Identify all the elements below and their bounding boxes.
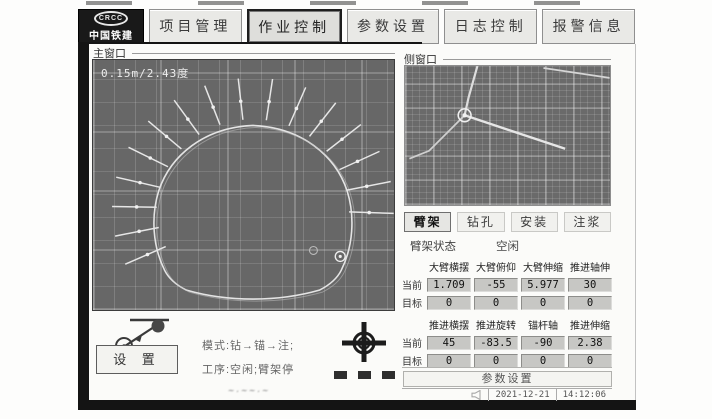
indicator-square [358, 371, 371, 379]
mode-drill-button[interactable]: 钻孔 [457, 212, 504, 232]
bolt-line [174, 100, 199, 134]
bolt-marker-dot [367, 211, 371, 215]
axis-value-field[interactable]: 0 [568, 296, 612, 310]
frame-strip-bottom [78, 400, 636, 410]
axis-tables: 大臂横摆大臂俯仰大臂伸缩推进轴伸当前1.709-555.97730目标0000推… [402, 259, 614, 368]
row-label: 目标 [402, 295, 424, 310]
indicator-square [382, 371, 395, 379]
bolt-line [349, 212, 394, 213]
header-rule [443, 59, 611, 60]
bolt-line [115, 227, 159, 236]
bolt-line [125, 247, 165, 265]
status-bar: 2021-12-21 14:12:06 [402, 388, 612, 401]
bolt-marker-dot [165, 135, 169, 139]
arm-status-value: 空闲 [496, 238, 519, 254]
indicator-squares [334, 371, 396, 379]
arm-status-label: 臂架状态 [410, 238, 456, 254]
axis-value-field[interactable]: -83.5 [474, 336, 518, 350]
axis-value-field[interactable]: 0 [427, 354, 471, 368]
bolt-line [339, 151, 379, 169]
bolt-line [129, 147, 168, 166]
axis-value-field[interactable]: 0 [568, 354, 612, 368]
axis-value-field[interactable]: 0 [474, 296, 518, 310]
row-label: 当前 [402, 335, 424, 350]
axis-value-field[interactable]: 2.38 [568, 336, 612, 350]
row-label: 当前 [402, 277, 424, 292]
sound-icon [465, 389, 488, 401]
axis-value-field[interactable]: 0 [474, 354, 518, 368]
bolt-marker-dot [146, 253, 150, 257]
position-marker-dot [339, 255, 342, 258]
bolt-line [327, 125, 361, 152]
axis-table-1: 大臂横摆大臂俯仰大臂伸缩推进轴伸当前1.709-555.97730目标0000 [402, 259, 614, 310]
header-rule [132, 53, 395, 54]
tunnel-drawing [93, 60, 394, 310]
illegible-scribble-watermark: ~·~~·~ [227, 386, 359, 397]
divider [402, 367, 612, 368]
tab-operation-control[interactable]: 作业控制 [247, 9, 342, 44]
axis-value-field[interactable]: -90 [521, 336, 565, 350]
setup-button[interactable]: 设 置 [96, 345, 178, 374]
bolt-marker-dot [211, 105, 215, 109]
bolt-line [116, 177, 159, 187]
axis-value-field[interactable]: 45 [427, 336, 471, 350]
axis-header: 推进旋转 [474, 317, 518, 332]
tab-parameter-settings[interactable]: 参数设置 [347, 9, 440, 44]
axis-header: 锚杆轴 [521, 317, 565, 332]
bolt-line [148, 121, 181, 149]
status-time: 14:12:06 [556, 389, 612, 401]
bolt-line [238, 79, 243, 120]
bolt-marker-dot [267, 100, 271, 104]
brand-logo: CRCC 中国铁建 [78, 9, 144, 44]
window-right-edge [635, 44, 636, 400]
axis-value-field[interactable]: -55 [474, 278, 518, 292]
axis-header: 推进轴伸 [568, 259, 612, 274]
tunnel-cross-section-canvas[interactable]: 0.15m/2.43度 [92, 59, 395, 311]
boom-side-view-drawing [405, 66, 610, 205]
scan-artifact [86, 1, 628, 5]
boom-side-view-canvas[interactable] [404, 65, 611, 206]
bolt-marker-dot [137, 230, 141, 234]
mode-text: 模式:钻→锚→注; [202, 337, 294, 353]
secondary-marker [309, 247, 317, 255]
top-bar: CRCC 中国铁建 项目管理作业控制参数设置日志控制报警信息 [78, 9, 635, 44]
bolt-line [309, 103, 335, 137]
arm-status-row: 臂架状态 空闲 [410, 238, 610, 254]
crosshair-target-icon [336, 320, 392, 368]
axis-header: 推进伸缩 [568, 317, 612, 332]
axis-value-field[interactable]: 0 [427, 296, 471, 310]
bolt-marker-dot [138, 181, 142, 185]
axis-value-field[interactable]: 5.977 [521, 278, 565, 292]
offset-angle-readout: 0.15m/2.43度 [101, 65, 189, 81]
bolt-marker-dot [340, 137, 344, 141]
axis-header: 推进横摆 [427, 317, 471, 332]
axis-value-field[interactable]: 0 [521, 354, 565, 368]
mode-boom-button[interactable]: 臂架 [404, 212, 451, 232]
bolt-line [347, 182, 391, 191]
crcc-emblem-icon: CRCC [94, 11, 128, 26]
bolt-marker-dot [148, 156, 152, 160]
tunnel-outline-inner [157, 127, 355, 301]
axis-value-field[interactable]: 0 [521, 296, 565, 310]
bolt-line [112, 207, 157, 208]
tab-project-management[interactable]: 项目管理 [149, 9, 242, 44]
tab-log-control[interactable]: 日志控制 [444, 9, 537, 44]
bolt-marker-dot [186, 117, 190, 121]
bolt-line [266, 79, 272, 120]
bolt-marker-dot [356, 160, 360, 164]
parameter-settings-button[interactable]: 参数设置 [403, 371, 612, 387]
mode-install-button[interactable]: 安装 [511, 212, 558, 232]
bolt-line [205, 86, 220, 125]
indicator-square [334, 371, 347, 379]
status-date: 2021-12-21 [488, 389, 555, 401]
mode-grout-button[interactable]: 注浆 [564, 212, 611, 232]
bolt-marker-dot [295, 107, 299, 111]
mode-button-row: 臂架钻孔安装注浆 [404, 212, 611, 232]
bolt-marker-dot [319, 120, 323, 124]
axis-header: 大臂伸缩 [521, 259, 565, 274]
tab-row: 项目管理作业控制参数设置日志控制报警信息 [149, 9, 635, 44]
tab-alarm-info[interactable]: 报警信息 [542, 9, 635, 44]
work-step-text: 工序:空闲;臂架停 [202, 361, 294, 377]
axis-table-2: 推进横摆推进旋转锚杆轴推进伸缩当前45-83.5-902.38目标0000 [402, 317, 614, 368]
bolt-marker-dot [135, 205, 139, 209]
row-label: 目标 [402, 353, 424, 368]
axis-value-field[interactable]: 30 [568, 278, 612, 292]
frame-strip-left [78, 44, 89, 402]
brand-name: 中国铁建 [89, 27, 133, 42]
bolt-marker-dot [239, 99, 243, 103]
axis-header: 大臂俯仰 [474, 259, 518, 274]
bolt-marker-dot [365, 185, 369, 189]
axis-value-field[interactable]: 1.709 [427, 278, 471, 292]
bolt-line [289, 87, 306, 125]
axis-header: 大臂横摆 [427, 259, 471, 274]
